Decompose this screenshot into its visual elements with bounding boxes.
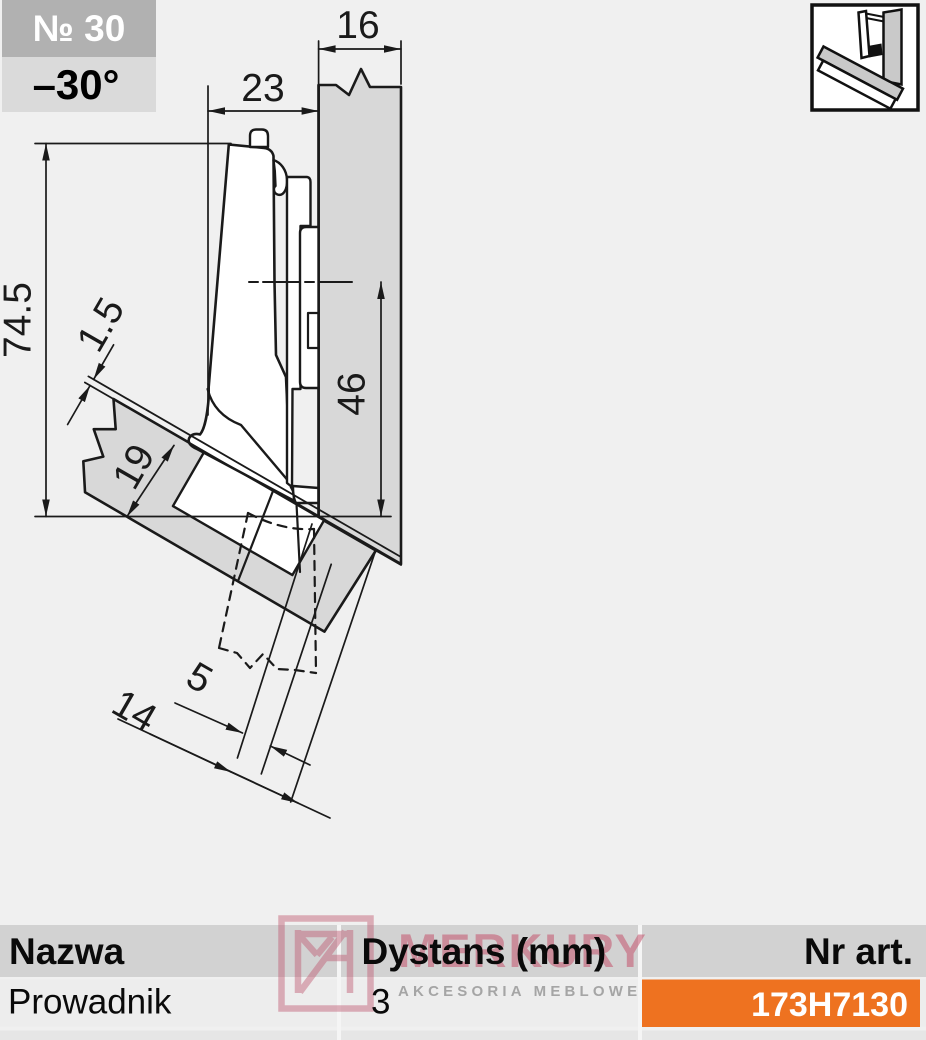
svg-text:Nazwa: Nazwa bbox=[9, 931, 125, 972]
svg-text:Dystans (mm): Dystans (mm) bbox=[362, 931, 607, 972]
svg-text:–30°: –30° bbox=[33, 61, 120, 108]
svg-text:Nr art.: Nr art. bbox=[804, 931, 913, 972]
svg-text:3: 3 bbox=[371, 983, 390, 1022]
svg-text:№ 30: № 30 bbox=[33, 8, 126, 49]
svg-text:173H7130: 173H7130 bbox=[751, 986, 908, 1024]
svg-text:16: 16 bbox=[336, 4, 379, 47]
svg-text:AKCESORIA MEBLOWE: AKCESORIA MEBLOWE bbox=[398, 983, 641, 1000]
svg-text:46: 46 bbox=[330, 372, 373, 415]
svg-text:Prowadnik: Prowadnik bbox=[8, 983, 172, 1022]
svg-text:74.5: 74.5 bbox=[0, 282, 39, 358]
svg-text:23: 23 bbox=[241, 67, 284, 110]
